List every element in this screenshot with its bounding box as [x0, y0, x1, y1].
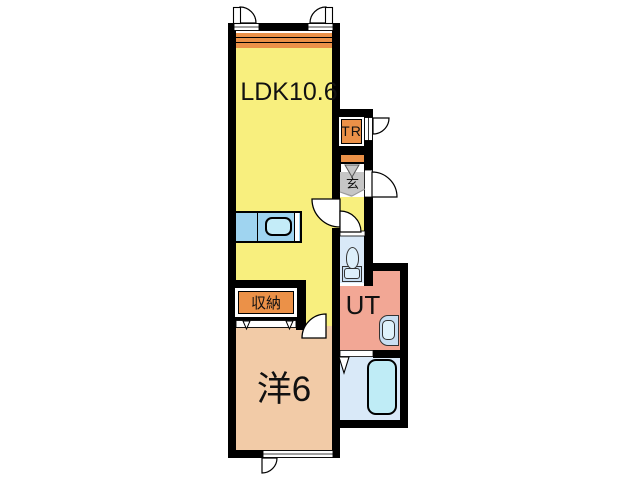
floor-plan: LDK10.6 TR 玄 収納 UT 洋6: [0, 0, 640, 480]
wall-right-lower: [400, 263, 408, 428]
label-genkan: 玄: [340, 177, 365, 190]
wall-stub: [296, 318, 306, 330]
wall-western-bottom: [228, 450, 340, 458]
toilet: [341, 246, 364, 283]
balcony-strip: [236, 31, 332, 48]
hall-strip: [306, 280, 332, 332]
label-closet: 収納: [234, 296, 298, 311]
kitchen-sink: [265, 217, 292, 236]
wall-right-upper: [364, 109, 373, 286]
room-utility-arm: [373, 271, 400, 286]
label-utility: UT: [340, 292, 386, 318]
hallway: [340, 197, 365, 233]
washbasin: [379, 315, 399, 346]
label-ldk: LDK10.6: [237, 80, 341, 105]
wall-bathdoor-side: [373, 350, 400, 358]
wall-tr-bottom: [332, 146, 373, 154]
label-western: 洋6: [236, 372, 332, 407]
bathtub: [367, 359, 397, 415]
wall-bath-bottom: [332, 420, 408, 428]
shoe-cabinet: [340, 154, 365, 163]
kitchen-counter: [234, 211, 302, 243]
wall-top: [228, 23, 340, 31]
label-tr: TR: [338, 124, 365, 138]
